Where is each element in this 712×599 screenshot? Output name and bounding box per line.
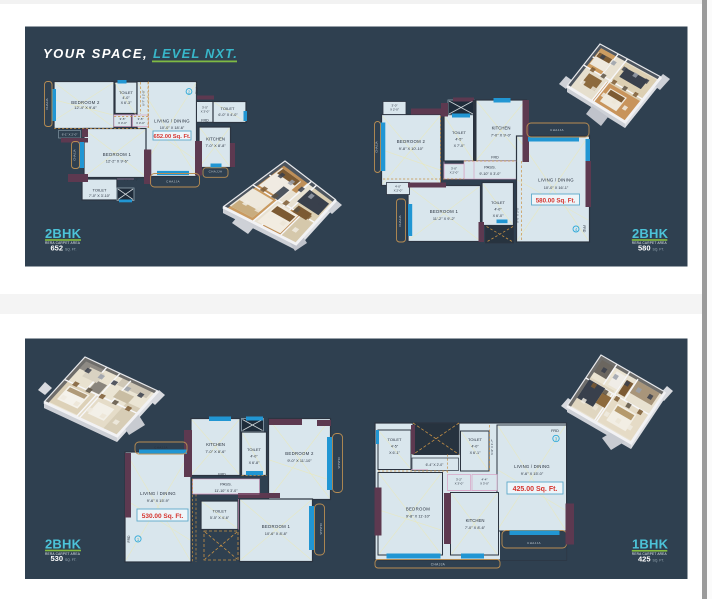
svg-text:652.00 Sq. Ft.: 652.00 Sq. Ft. <box>153 134 190 140</box>
svg-text:10'-0" X 16'-1": 10'-0" X 16'-1" <box>544 185 569 190</box>
svg-text:CHAJJA: CHAJJA <box>72 149 76 160</box>
svg-text:9'-10" X 3'-0": 9'-10" X 3'-0" <box>479 172 501 176</box>
svg-text:CHAJJA: CHAJJA <box>431 563 446 567</box>
svg-text:BEDROOM 1: BEDROOM 1 <box>430 209 459 214</box>
svg-text:X 3'-0": X 3'-0" <box>201 110 210 114</box>
svg-text:LIVING / DINING: LIVING / DINING <box>154 119 190 124</box>
svg-text:CHAJJA: CHAJJA <box>527 541 541 545</box>
svg-text:6'-7" X 2'-0": 6'-7" X 2'-0" <box>142 90 146 106</box>
svg-text:LIVING / DINING: LIVING / DINING <box>514 464 550 469</box>
svg-text:CHAJJA: CHAJJA <box>45 98 49 109</box>
svg-text:6'-0" X 2'-0": 6'-0" X 2'-0" <box>124 178 139 182</box>
svg-text:10'-0" X 18'-6": 10'-0" X 18'-6" <box>160 125 185 130</box>
svg-text:2BHK: 2BHK <box>632 226 669 241</box>
svg-text:YOUR SPACE,: YOUR SPACE, <box>43 46 148 61</box>
svg-text:X 3'-0": X 3'-0" <box>455 482 464 486</box>
svg-text:X 2'-0": X 2'-0" <box>390 108 399 112</box>
svg-text:6'-4" X 2'-0": 6'-4" X 2'-0" <box>426 463 444 467</box>
svg-text:TOILET: TOILET <box>119 90 133 95</box>
svg-text:4'-0": 4'-0" <box>250 455 258 459</box>
svg-text:11'-2" X 9'-2": 11'-2" X 9'-2" <box>433 216 456 221</box>
svg-text:2BHK: 2BHK <box>45 537 82 552</box>
svg-text:TOILET: TOILET <box>213 509 227 514</box>
svg-text:X 6'-3": X 6'-3" <box>121 101 133 105</box>
svg-text:KITCHEN: KITCHEN <box>206 137 225 142</box>
svg-text:TOILET: TOILET <box>221 106 235 111</box>
svg-text:10'-6" X 8'-8": 10'-6" X 8'-8" <box>265 531 288 536</box>
svg-text:7'-0" X 9'-0": 7'-0" X 9'-0" <box>491 133 512 138</box>
svg-text:6'-0" X 4'-0": 6'-0" X 4'-0" <box>218 113 238 117</box>
svg-text:5'-5" X 4'-6": 5'-5" X 4'-6" <box>210 516 230 520</box>
svg-text:9'-8" X 11'-10": 9'-8" X 11'-10" <box>406 514 431 519</box>
svg-text:X 6'-0": X 6'-0" <box>493 214 505 218</box>
svg-text:4'-5": 4'-5" <box>455 138 463 142</box>
svg-text:TOILET: TOILET <box>452 130 466 135</box>
svg-text:12'-4" X 9'-6": 12'-4" X 9'-6" <box>74 105 97 110</box>
svg-text:X 3'-0": X 3'-0" <box>136 121 145 125</box>
svg-text:X 7'-0": X 7'-0" <box>454 144 466 148</box>
svg-text:FRD: FRD <box>491 156 499 160</box>
svg-text:4'-5": 4'-5" <box>391 445 399 449</box>
svg-text:CHAJJA: CHAJJA <box>209 169 223 173</box>
svg-text:KITCHEN: KITCHEN <box>206 442 225 447</box>
svg-text:7'-0" X 8'-8": 7'-0" X 8'-8" <box>205 143 226 148</box>
svg-text:X 6'-1": X 6'-1" <box>389 451 401 455</box>
svg-text:580.00 Sq. Ft.: 580.00 Sq. Ft. <box>536 197 576 204</box>
svg-text:FRD: FRD <box>195 88 199 96</box>
svg-text:CHAJJA: CHAJJA <box>337 457 341 468</box>
svg-text:9'-6" X 15'-9": 9'-6" X 15'-9" <box>147 498 170 503</box>
svg-text:9'-6" X 15'-0": 9'-6" X 15'-0" <box>521 471 544 476</box>
svg-text:425.00 Sq. Ft.: 425.00 Sq. Ft. <box>513 486 558 493</box>
svg-text:530.00 Sq. Ft.: 530.00 Sq. Ft. <box>142 513 184 520</box>
svg-text:X 3'-0": X 3'-0" <box>118 121 127 125</box>
svg-text:TOILET: TOILET <box>468 437 482 442</box>
svg-text:PASS.: PASS. <box>220 482 232 487</box>
svg-text:4'-0": 4'-0" <box>122 96 130 100</box>
svg-text:4'-0": 4'-0" <box>494 208 502 212</box>
svg-text:LIVING / DINING: LIVING / DINING <box>140 491 176 496</box>
svg-text:X 6'-1": X 6'-1" <box>470 451 482 455</box>
svg-text:LIVING / DINING: LIVING / DINING <box>538 178 574 183</box>
svg-text:BEDROOM 2: BEDROOM 2 <box>397 139 426 144</box>
svg-text:2BHK: 2BHK <box>45 226 82 241</box>
svg-text:BEDROOM 2: BEDROOM 2 <box>285 451 314 456</box>
svg-text:FRD: FRD <box>551 429 559 433</box>
svg-text:TOILET: TOILET <box>388 437 402 442</box>
svg-text:4'-0": 4'-0" <box>471 445 479 449</box>
svg-text:6'-9" X 1'-7": 6'-9" X 1'-7" <box>490 439 494 455</box>
svg-text:BEDROOM 1: BEDROOM 1 <box>262 524 291 529</box>
svg-text:9'-6" X 3'-0": 9'-6" X 3'-0" <box>516 207 520 223</box>
svg-text:LEVEL NXT.: LEVEL NXT. <box>153 46 238 61</box>
svg-text:9'-8" X 10'-10": 9'-8" X 10'-10" <box>399 146 424 151</box>
svg-text:PASS.: PASS. <box>484 165 496 170</box>
svg-text:BEDROOM: BEDROOM <box>406 507 430 512</box>
svg-text:FRD: FRD <box>582 225 586 233</box>
svg-text:BEDROOM 1: BEDROOM 1 <box>103 152 132 157</box>
svg-text:6'-1" X 2'-0": 6'-1" X 2'-0" <box>62 133 78 137</box>
svg-text:FRD: FRD <box>218 473 226 477</box>
svg-text:CHAJJA: CHAJJA <box>550 128 564 132</box>
svg-text:7'-0" X 3'-10": 7'-0" X 3'-10" <box>89 194 111 198</box>
svg-text:9'-0" X 11'-10": 9'-0" X 11'-10" <box>287 458 312 463</box>
svg-text:3'-0" X 1'-6": 3'-0" X 1'-6" <box>191 512 195 528</box>
svg-text:X 3'-0": X 3'-0" <box>480 482 489 486</box>
svg-text:TOILET: TOILET <box>247 447 261 452</box>
svg-text:X 6'-8": X 6'-8" <box>249 461 261 465</box>
svg-text:7'-0" X 8'-6": 7'-0" X 8'-6" <box>465 525 486 530</box>
svg-text:TOILET: TOILET <box>93 187 107 192</box>
svg-text:12'-2" X 9'-6": 12'-2" X 9'-6" <box>106 159 129 164</box>
svg-text:FRD: FRD <box>127 535 131 543</box>
svg-text:CHAJJA: CHAJJA <box>319 523 323 534</box>
svg-text:X 2'-0": X 2'-0" <box>394 189 403 193</box>
svg-text:CHAJJA: CHAJJA <box>166 180 180 184</box>
svg-text:KITCHEN: KITCHEN <box>466 518 485 523</box>
svg-text:FRD: FRD <box>201 118 209 122</box>
svg-text:TOILET: TOILET <box>491 200 505 205</box>
svg-text:CHAJJA: CHAJJA <box>374 141 378 152</box>
svg-text:1BHK: 1BHK <box>632 537 669 552</box>
svg-text:X 2'-0": X 2'-0" <box>450 171 459 175</box>
svg-text:11'-10" X 3'-0": 11'-10" X 3'-0" <box>214 489 238 493</box>
svg-text:7'-0" X 8'-6": 7'-0" X 8'-6" <box>205 449 226 454</box>
svg-text:KITCHEN: KITCHEN <box>492 126 511 131</box>
svg-text:CHAJJA: CHAJJA <box>398 215 402 226</box>
svg-text:CHAJJA: CHAJJA <box>154 446 168 450</box>
